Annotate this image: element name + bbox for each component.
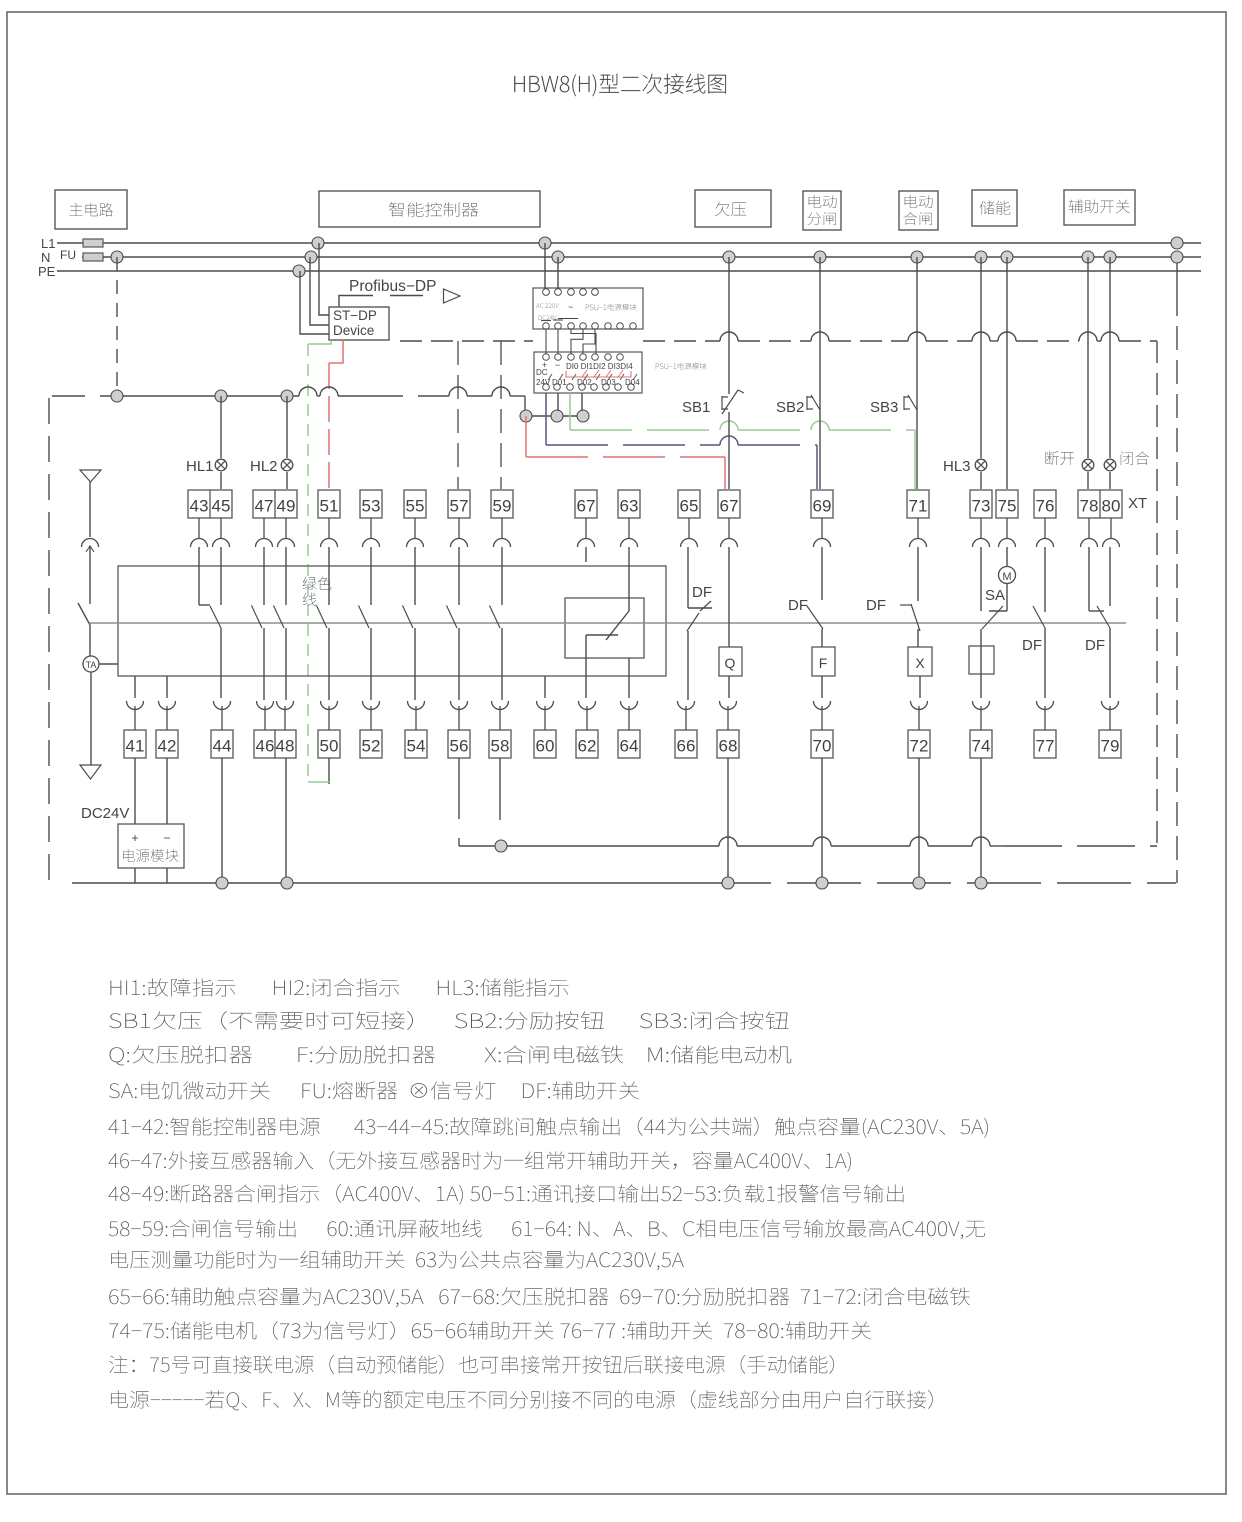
svg-text:54: 54: [407, 737, 426, 756]
svg-text:HL1: HL1: [186, 458, 214, 475]
svg-text:67: 67: [577, 497, 596, 516]
svg-text:24V: 24V: [536, 378, 551, 387]
svg-text:SA: SA: [985, 587, 1005, 604]
svg-text:80: 80: [1102, 497, 1121, 516]
svg-text:N: N: [41, 250, 50, 265]
svg-text:43: 43: [190, 497, 209, 516]
svg-text:DF: DF: [1022, 637, 1042, 654]
svg-text:HL2: HL2: [250, 458, 278, 475]
svg-text:67: 67: [720, 497, 739, 516]
svg-text:62: 62: [578, 737, 597, 756]
svg-text:63: 63: [620, 497, 639, 516]
svg-text:DF: DF: [1085, 637, 1105, 654]
svg-text:71: 71: [909, 497, 928, 516]
svg-text:DC: DC: [536, 368, 548, 377]
svg-text:70: 70: [813, 737, 832, 756]
svg-text:64: 64: [620, 737, 639, 756]
svg-text:PE: PE: [38, 264, 56, 279]
svg-text:SB2: SB2: [776, 399, 804, 416]
svg-text:L1: L1: [41, 236, 55, 251]
svg-text:X: X: [915, 655, 925, 671]
svg-text:42: 42: [158, 737, 177, 756]
svg-text:73: 73: [972, 497, 991, 516]
svg-text:45: 45: [212, 497, 231, 516]
svg-text:60: 60: [536, 737, 555, 756]
svg-text:72: 72: [910, 737, 929, 756]
svg-text:D01: D01: [552, 378, 567, 387]
svg-text:Device: Device: [333, 323, 374, 338]
svg-text:69: 69: [813, 497, 832, 516]
svg-text:52: 52: [362, 737, 381, 756]
svg-text:−: −: [555, 360, 560, 370]
svg-text:55: 55: [406, 497, 425, 516]
svg-text:44: 44: [213, 737, 232, 756]
svg-text:XT: XT: [1128, 495, 1147, 512]
svg-text:F: F: [819, 655, 828, 671]
svg-text:M: M: [1002, 571, 1011, 583]
svg-text:48: 48: [276, 737, 295, 756]
svg-text:D02: D02: [577, 378, 592, 387]
svg-text:Q: Q: [725, 655, 736, 671]
svg-text:75: 75: [998, 497, 1017, 516]
svg-text:49: 49: [277, 497, 296, 516]
svg-text:74: 74: [972, 737, 991, 756]
svg-text:56: 56: [450, 737, 469, 756]
svg-text:46: 46: [256, 737, 275, 756]
svg-text:41: 41: [126, 737, 145, 756]
svg-text:66: 66: [677, 737, 696, 756]
svg-text:HL3: HL3: [943, 458, 971, 475]
svg-text:68: 68: [719, 737, 738, 756]
svg-text:51: 51: [320, 497, 339, 516]
svg-text:57: 57: [450, 497, 469, 516]
svg-text:47: 47: [255, 497, 274, 516]
svg-text:D04: D04: [625, 378, 640, 387]
svg-text:77: 77: [1036, 737, 1055, 756]
svg-text:~: ~: [568, 302, 573, 312]
svg-text:TA: TA: [86, 660, 97, 670]
svg-text:65: 65: [680, 497, 699, 516]
svg-text:DI0 DI1DI2 DI3DI4: DI0 DI1DI2 DI3DI4: [566, 362, 633, 371]
svg-text:50: 50: [320, 737, 339, 756]
svg-text:Profibus−DP: Profibus−DP: [349, 278, 436, 295]
svg-text:DF: DF: [866, 597, 886, 614]
svg-text:DF: DF: [788, 597, 808, 614]
svg-text:76: 76: [1036, 497, 1055, 516]
svg-text:58: 58: [491, 737, 510, 756]
svg-text:SB1: SB1: [682, 399, 710, 416]
svg-text:−: −: [163, 831, 170, 845]
svg-text:53: 53: [362, 497, 381, 516]
svg-text:+: +: [131, 831, 138, 845]
svg-text:79: 79: [1101, 737, 1120, 756]
svg-text:59: 59: [493, 497, 512, 516]
svg-text:SB3: SB3: [870, 399, 898, 416]
svg-text:ST−DP: ST−DP: [333, 308, 377, 323]
svg-text:DF: DF: [692, 584, 712, 601]
svg-text:D03: D03: [601, 378, 616, 387]
svg-text:78: 78: [1080, 497, 1099, 516]
svg-text:DC24V: DC24V: [81, 805, 129, 822]
svg-text:FU: FU: [60, 248, 76, 262]
